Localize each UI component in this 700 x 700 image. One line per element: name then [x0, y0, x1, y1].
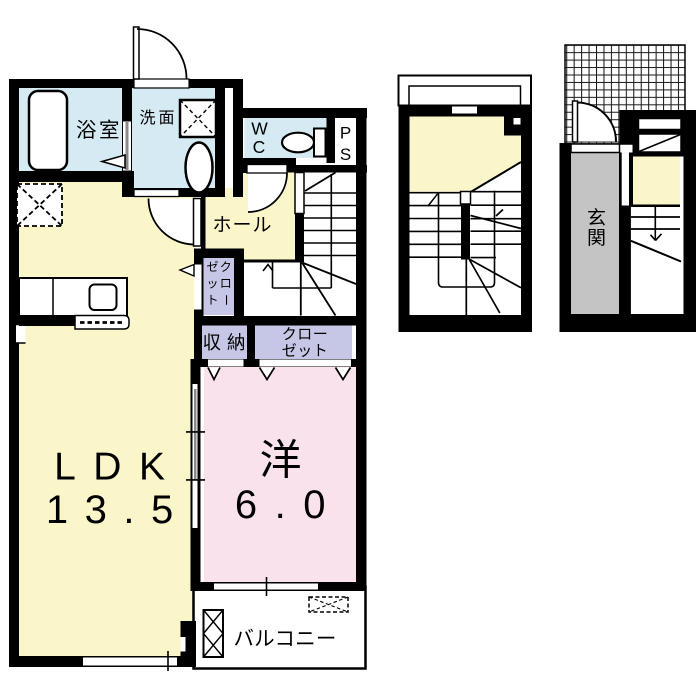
svg-text:浴室: 浴室 [76, 119, 122, 142]
svg-text:ッ: ッ [206, 277, 218, 291]
svg-text:ト: ト [206, 293, 218, 307]
svg-text:クロー: クロー [282, 326, 329, 343]
svg-text:ー: ー [219, 294, 233, 306]
svg-text:玄: 玄 [587, 207, 606, 229]
svg-text:収納: 収納 [202, 332, 251, 353]
svg-text:LDK: LDK [54, 446, 182, 489]
svg-text:ゼット: ゼット [282, 343, 329, 360]
svg-text:W: W [251, 119, 268, 139]
svg-text:C: C [253, 137, 266, 157]
svg-text:ロ: ロ [220, 277, 232, 291]
svg-text:洗面: 洗面 [139, 109, 177, 127]
svg-text:6.0: 6.0 [235, 483, 343, 527]
svg-text:13.5: 13.5 [46, 488, 190, 532]
svg-text:P: P [340, 124, 351, 143]
svg-text:ホール: ホール [212, 215, 272, 236]
svg-text:ゼ: ゼ [206, 260, 218, 274]
svg-text:関: 関 [587, 228, 606, 249]
svg-text:ク: ク [220, 260, 232, 274]
svg-text:洋: 洋 [259, 437, 301, 484]
svg-text:S: S [340, 145, 351, 164]
svg-text:バルコニー: バルコニー [233, 628, 336, 651]
